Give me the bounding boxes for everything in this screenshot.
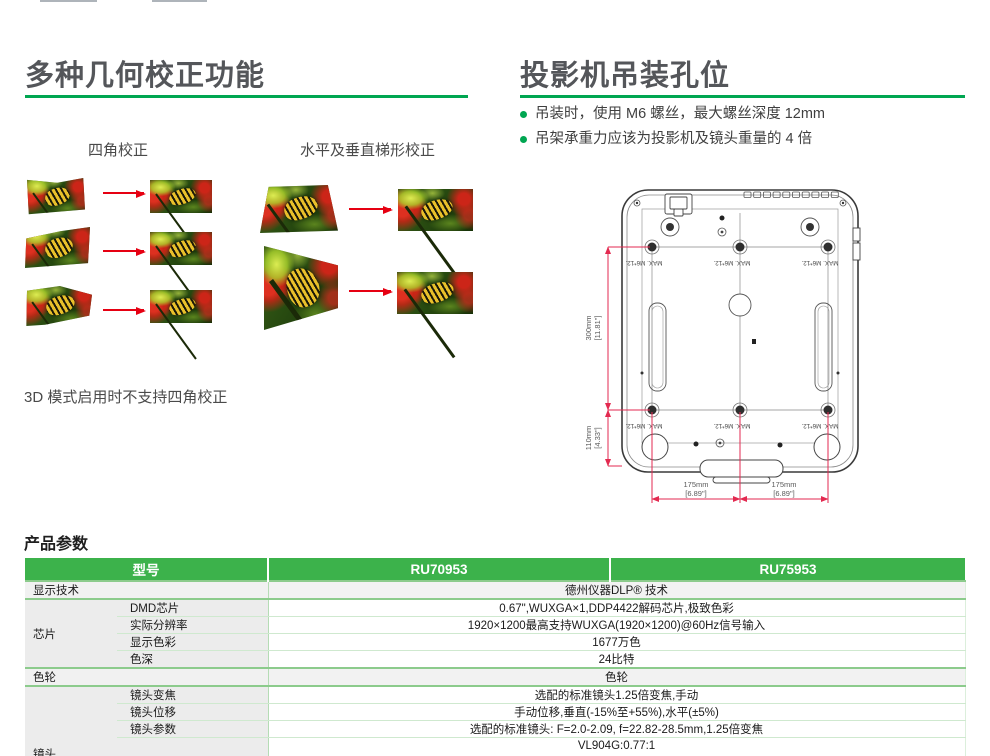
- small-stud: [752, 339, 756, 344]
- bullet-text: 吊架承重力应该为投影机及镜头重量的 4 倍: [535, 131, 812, 147]
- svg-text:MAX. M6*12.: MAX. M6*12.: [801, 259, 838, 266]
- row-value: 1677万色: [268, 634, 965, 651]
- note-3d-mode: 3D 模式启用时不支持四角校正: [24, 386, 227, 407]
- corrected-image: [150, 290, 212, 323]
- arrow-icon: [103, 250, 144, 252]
- distorted-image: [25, 227, 90, 268]
- mount-hole-diagram: MAX. M6*12. MAX. M6*12. MAX. M6*12. MAX.…: [582, 183, 982, 518]
- table-row: 镜头位移 手动位移,垂直(-15%至+55%),水平(±5%): [25, 704, 965, 721]
- distorted-image: [264, 246, 338, 330]
- foot: [642, 434, 668, 460]
- green-underline: [25, 95, 468, 98]
- table-row: VL904G:0.77:1: [25, 738, 965, 755]
- row-value: 24比特: [268, 651, 965, 669]
- svg-text:MAX. M6*12.: MAX. M6*12.: [713, 422, 750, 429]
- table-row: 显示技术 德州仪器DLP® 技术: [25, 581, 965, 599]
- center-hole: [729, 294, 751, 316]
- row-value: VL904G:0.77:1: [268, 738, 965, 755]
- row-value: 手动位移,垂直(-15%至+55%),水平(±5%): [268, 704, 965, 721]
- distorted-image: [27, 178, 85, 215]
- row-label: 色深: [117, 651, 268, 669]
- caption-corner-correction: 四角校正: [88, 139, 148, 160]
- corrected-image: [398, 189, 473, 231]
- bullet-icon: [520, 111, 527, 118]
- list-item: 吊架承重力应该为投影机及镜头重量的 4 倍: [520, 127, 825, 152]
- svg-text:[6.89"]: [6.89"]: [685, 489, 706, 498]
- mount-instructions-list: 吊装时，使用 M6 螺丝，最大螺丝深度 12mm 吊架承重力应该为投影机及镜头重…: [520, 102, 825, 152]
- list-item: 吊装时，使用 M6 螺丝，最大螺丝深度 12mm: [520, 102, 825, 127]
- svg-text:MAX. M6*12.: MAX. M6*12.: [625, 422, 662, 429]
- foot: [814, 434, 840, 460]
- table-row: 实际分辨率 1920×1200最高支持WUXGA(1920×1200)@60Hz…: [25, 617, 965, 634]
- row-label: 镜头参数: [117, 721, 268, 738]
- row-label: 镜头位移: [117, 704, 268, 721]
- cropped-text-remnant: [152, 0, 207, 2]
- row-label: 显示技术: [25, 581, 268, 599]
- svg-text:MAX. M6*12.: MAX. M6*12.: [801, 422, 838, 429]
- header-model-ru75953: RU75953: [610, 558, 965, 581]
- bullet-icon: [520, 136, 527, 143]
- spec-table-title: 产品参数: [24, 530, 88, 554]
- row-value: 选配的标准镜头: F=2.0-2.09, f=22.82-28.5mm,1.25…: [268, 721, 965, 738]
- corrected-image: [150, 232, 212, 265]
- arrow-icon: [349, 208, 391, 210]
- svg-text:175mm: 175mm: [683, 480, 708, 489]
- group-label: 镜头: [25, 686, 117, 756]
- row-label: 实际分辨率: [117, 617, 268, 634]
- row-label: DMD芯片: [117, 599, 268, 617]
- row-value: 德州仪器DLP® 技术: [268, 581, 965, 599]
- svg-text:110mm: 110mm: [584, 426, 593, 450]
- table-row: 镜头参数 选配的标准镜头: F=2.0-2.09, f=22.82-28.5mm…: [25, 721, 965, 738]
- row-label: 色轮: [25, 668, 268, 686]
- row-value: 0.67",WUXGA×1,DDP4422解码芯片,极致色彩: [268, 599, 965, 617]
- section-title-mount-holes: 投影机吊装孔位: [520, 52, 730, 94]
- table-row: 芯片 DMD芯片 0.67",WUXGA×1,DDP4422解码芯片,极致色彩: [25, 599, 965, 617]
- svg-text:[6.89"]: [6.89"]: [773, 489, 794, 498]
- table-row: 显示色彩 1677万色: [25, 634, 965, 651]
- corrected-image: [397, 272, 473, 314]
- distorted-image: [260, 185, 338, 233]
- header-model-ru70953: RU70953: [268, 558, 610, 581]
- table-header-row: 型号 RU70953 RU75953: [25, 558, 965, 581]
- table-row: 色轮 色轮: [25, 668, 965, 686]
- datasheet-page: 多种几何校正功能 四角校正 水平及垂直梯形校正 3D 模式启用时不支持四角校正 …: [0, 0, 990, 756]
- svg-text:[4.33"]: [4.33"]: [593, 427, 602, 448]
- svg-text:[11.81"]: [11.81"]: [593, 315, 602, 340]
- arrow-icon: [349, 290, 391, 292]
- header-model: 型号: [25, 558, 268, 581]
- row-value: 1920×1200最高支持WUXGA(1920×1200)@60Hz信号输入: [268, 617, 965, 634]
- row-label: [117, 738, 268, 756]
- svg-text:MAX. M6*12.: MAX. M6*12.: [713, 259, 750, 266]
- row-value: 选配的标准镜头1.25倍变焦,手动: [268, 686, 965, 704]
- arrow-icon: [103, 192, 144, 194]
- group-label: 芯片: [25, 599, 117, 668]
- row-value: 色轮: [268, 668, 965, 686]
- cropped-text-remnant: [40, 0, 97, 2]
- svg-text:175mm: 175mm: [771, 480, 796, 489]
- svg-text:MAX. M6*12.: MAX. M6*12.: [625, 259, 662, 266]
- corrected-image: [150, 180, 212, 213]
- latch: [665, 194, 692, 216]
- svg-text:300mm: 300mm: [584, 315, 593, 340]
- section-title-geometry-correction: 多种几何校正功能: [25, 52, 265, 94]
- spec-table: 型号 RU70953 RU75953 显示技术 德州仪器DLP® 技术 芯片 D…: [25, 558, 966, 756]
- side-connector: [853, 228, 860, 260]
- table-row: 色深 24比特: [25, 651, 965, 669]
- distorted-image: [25, 286, 92, 326]
- caption-keystone-correction: 水平及垂直梯形校正: [300, 139, 435, 160]
- bullet-text: 吊装时，使用 M6 螺丝，最大螺丝深度 12mm: [535, 106, 825, 122]
- table-row: 镜头 镜头变焦 选配的标准镜头1.25倍变焦,手动: [25, 686, 965, 704]
- row-label: 显示色彩: [117, 634, 268, 651]
- arrow-icon: [103, 309, 144, 311]
- row-label: 镜头变焦: [117, 686, 268, 704]
- green-underline: [520, 95, 965, 98]
